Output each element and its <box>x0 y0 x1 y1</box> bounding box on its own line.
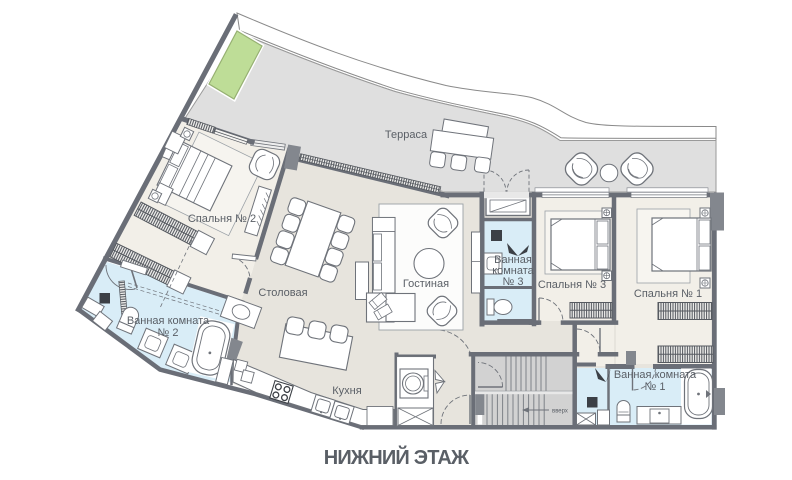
svg-text:Спальня № 2: Спальня № 2 <box>188 213 256 225</box>
svg-text:Терраса: Терраса <box>385 129 428 141</box>
svg-text:Ванная комната: Ванная комната <box>127 315 210 327</box>
svg-text:№ 1: № 1 <box>645 381 666 393</box>
svg-text:Ванная комната: Ванная комната <box>614 369 697 381</box>
svg-text:НИЖНИЙ ЭТАЖ: НИЖНИЙ ЭТАЖ <box>324 445 470 469</box>
svg-text:№ 2: № 2 <box>158 327 179 339</box>
svg-text:Кухня: Кухня <box>332 385 361 397</box>
svg-text:Спальня № 1: Спальня № 1 <box>634 288 702 300</box>
svg-text:вверх: вверх <box>552 409 568 415</box>
svg-text:Спальня № 3: Спальня № 3 <box>538 279 606 291</box>
svg-text:Столовая: Столовая <box>258 287 307 299</box>
svg-text:Гостиная: Гостиная <box>403 278 449 290</box>
svg-text:№ 3: № 3 <box>503 276 524 288</box>
